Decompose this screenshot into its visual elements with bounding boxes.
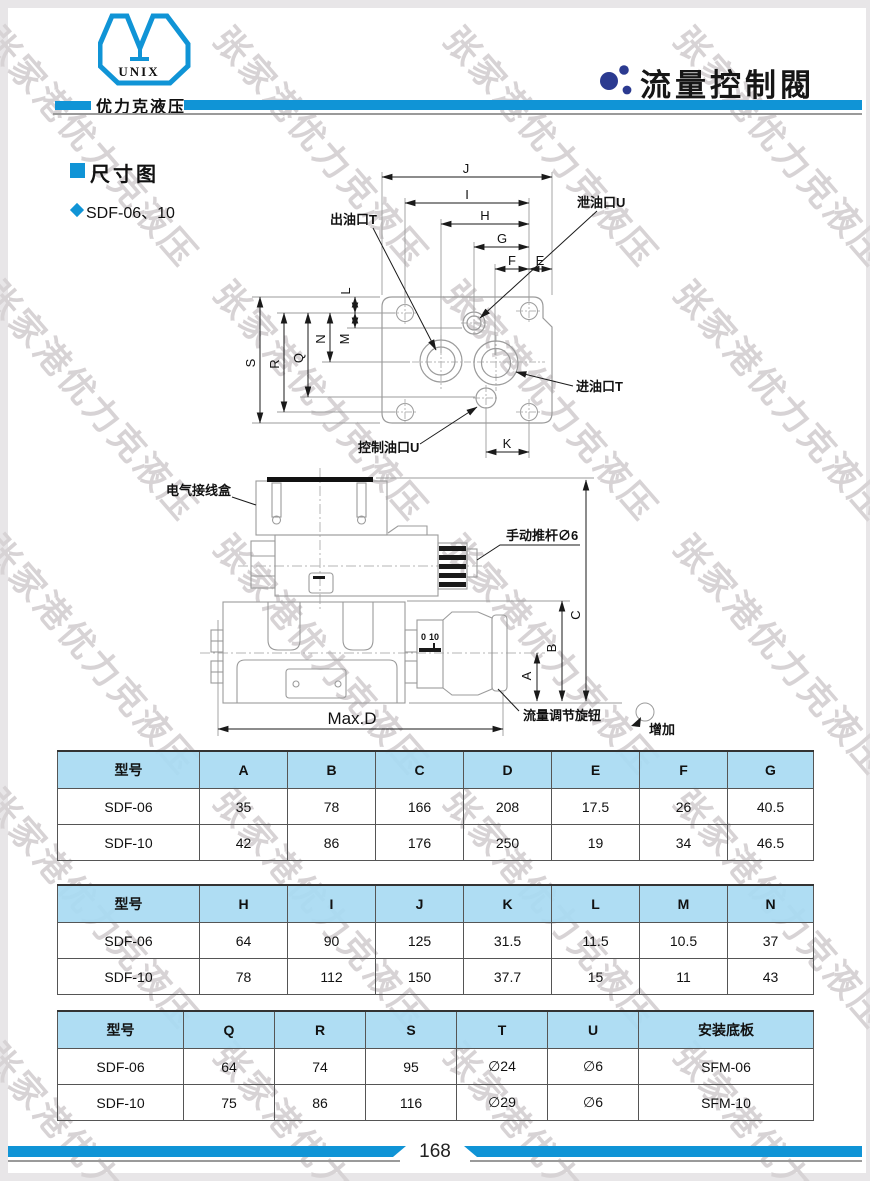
table-header-cell: R — [275, 1011, 366, 1049]
table-header-cell: 安装底板 — [639, 1011, 814, 1049]
table-cell: 37.7 — [464, 959, 552, 995]
footer-hairline-right — [470, 1160, 862, 1162]
table-row: SDF-06647495∅24∅6SFM-06 — [58, 1049, 814, 1085]
table-cell: SDF-10 — [58, 1085, 184, 1121]
table-cell: 26 — [640, 789, 728, 825]
table-cell: 19 — [552, 825, 640, 861]
port-leaders — [373, 211, 597, 444]
table-header-cell: E — [552, 751, 640, 789]
extension-lines-top — [252, 172, 552, 458]
junction-box-top-bar — [267, 477, 373, 482]
table-row: SDF-06357816620817.52640.5 — [58, 789, 814, 825]
table-header-cell: B — [288, 751, 376, 789]
table-cell: 10.5 — [640, 923, 728, 959]
dim-C: C — [568, 610, 583, 619]
table-cell: 37 — [728, 923, 814, 959]
table-cell: 250 — [464, 825, 552, 861]
table-header-cell: H — [200, 885, 288, 923]
footer-bar-right — [464, 1146, 862, 1157]
dimension-table-h-n: 型号HIJKLMNSDF-06649012531.511.510.537SDF-… — [57, 884, 814, 995]
table-header-cell: C — [376, 751, 464, 789]
table-cell: 112 — [288, 959, 376, 995]
flow-knob-label: 流量调节旋钮 — [523, 708, 601, 723]
table-cell: ∅29 — [457, 1085, 548, 1121]
dim-B: B — [544, 644, 559, 653]
knob-scale-bar — [419, 648, 441, 652]
dim-Q: Q — [291, 353, 306, 363]
dimension-lines-top — [260, 177, 552, 452]
table-cell: 95 — [366, 1049, 457, 1085]
table-cell: 64 — [200, 923, 288, 959]
table-cell: 86 — [288, 825, 376, 861]
increase-arrow-icon — [631, 717, 641, 727]
footer-hairline-left — [8, 1160, 400, 1162]
table-header-cell: 型号 — [58, 1011, 184, 1049]
control-port-label: 控制油口U — [358, 440, 419, 455]
manual-rod-label: 手动推杆∅6 — [506, 528, 578, 543]
table-cell: SDF-10 — [58, 959, 200, 995]
table-cell: 40.5 — [728, 789, 814, 825]
drain-port-label: 泄油口U — [577, 195, 625, 210]
table-cell: 42 — [200, 825, 288, 861]
table-cell: 75 — [184, 1085, 275, 1121]
ports — [420, 312, 518, 408]
table-cell: 78 — [288, 789, 376, 825]
table-cell: 17.5 — [552, 789, 640, 825]
side-view: 0 10 C B A Max.D 电气接线盒 手动推杆∅6 流量调节旋钮 — [166, 468, 675, 737]
out-port-label: 出油口T — [330, 212, 377, 227]
dim-F: F — [508, 253, 516, 268]
table-cell: 86 — [275, 1085, 366, 1121]
dim-L: L — [338, 287, 353, 294]
table-header-cell: D — [464, 751, 552, 789]
table-cell: 43 — [728, 959, 814, 995]
table-row: SDF-104286176250193446.5 — [58, 825, 814, 861]
junction-box — [256, 481, 427, 535]
dim-max-d: Max.D — [327, 709, 376, 728]
top-view: J I H G F E K L M N Q R S 出油口T 泄油口U 进油口T… — [243, 161, 625, 458]
dim-A: A — [519, 671, 534, 680]
table-cell: 11 — [640, 959, 728, 995]
table-header-cell: I — [288, 885, 376, 923]
table-header-cell: F — [640, 751, 728, 789]
junction-box-label: 电气接线盒 — [166, 483, 232, 498]
in-port-label: 进油口T — [576, 379, 623, 394]
table-header-cell: U — [548, 1011, 639, 1049]
table-header-cell: G — [728, 751, 814, 789]
dim-H: H — [480, 208, 489, 223]
table-header-cell: S — [366, 1011, 457, 1049]
dim-R: R — [267, 359, 282, 368]
table-cell: 11.5 — [552, 923, 640, 959]
increase-label: 增加 — [649, 722, 675, 737]
table-cell: ∅6 — [548, 1085, 639, 1121]
dim-K: K — [503, 436, 512, 451]
table-header-cell: K — [464, 885, 552, 923]
table-cell: 31.5 — [464, 923, 552, 959]
table-cell: 46.5 — [728, 825, 814, 861]
table-cell: SFM-06 — [639, 1049, 814, 1085]
table-cell: ∅6 — [548, 1049, 639, 1085]
table-row: SDF-107586116∅29∅6SFM-10 — [58, 1085, 814, 1121]
dimension-table-a-g: 型号ABCDEFGSDF-06357816620817.52640.5SDF-1… — [57, 750, 814, 861]
table-header-cell: 型号 — [58, 751, 200, 789]
dim-J: J — [463, 161, 470, 176]
table-cell: SFM-10 — [639, 1085, 814, 1121]
dim-G: G — [497, 231, 507, 246]
table-cell: 125 — [376, 923, 464, 959]
page-number: 168 — [402, 1141, 468, 1163]
table-cell: SDF-06 — [58, 923, 200, 959]
increase-direction-icon — [636, 703, 654, 721]
table-cell: 176 — [376, 825, 464, 861]
table-cell: SDF-10 — [58, 825, 200, 861]
dim-S: S — [243, 358, 258, 367]
table-cell: 35 — [200, 789, 288, 825]
table-header-cell: Q — [184, 1011, 275, 1049]
table-header-cell: 型号 — [58, 885, 200, 923]
table-header-cell: A — [200, 751, 288, 789]
table-header-cell: N — [728, 885, 814, 923]
table-cell: 78 — [200, 959, 288, 995]
table-cell: 34 — [640, 825, 728, 861]
dim-I: I — [465, 187, 469, 202]
dim-N: N — [313, 334, 328, 343]
table-cell: 208 — [464, 789, 552, 825]
table-cell: 90 — [288, 923, 376, 959]
dimension-diagram: J I H G F E K L M N Q R S 出油口T 泄油口U 进油口T… — [0, 0, 870, 1181]
hole-crosshairs — [392, 298, 545, 425]
scale-ten: 10 — [429, 632, 439, 642]
table-cell: 15 — [552, 959, 640, 995]
table-cell: 116 — [366, 1085, 457, 1121]
table-header-cell: M — [640, 885, 728, 923]
table-cell: SDF-06 — [58, 789, 200, 825]
knob-scale-tick — [433, 643, 435, 648]
table-cell: 150 — [376, 959, 464, 995]
table-cell: 74 — [275, 1049, 366, 1085]
table-row: SDF-06649012531.511.510.537 — [58, 923, 814, 959]
dim-M: M — [337, 334, 352, 345]
table-cell: 166 — [376, 789, 464, 825]
table-cell: ∅24 — [457, 1049, 548, 1085]
table-header-row: 型号ABCDEFG — [58, 751, 814, 789]
table-header-cell: T — [457, 1011, 548, 1049]
table-header-row: 型号HIJKLMN — [58, 885, 814, 923]
scale-zero: 0 — [421, 632, 426, 642]
table-header-cell: J — [376, 885, 464, 923]
table-header-cell: L — [552, 885, 640, 923]
table-header-row: 型号QRSTU安装底板 — [58, 1011, 814, 1049]
table-row: SDF-107811215037.7151143 — [58, 959, 814, 995]
table-cell: 64 — [184, 1049, 275, 1085]
dimension-table-q-u: 型号QRSTU安装底板SDF-06647495∅24∅6SFM-06SDF-10… — [57, 1010, 814, 1121]
footer-bar-left — [8, 1146, 406, 1157]
table-cell: SDF-06 — [58, 1049, 184, 1085]
